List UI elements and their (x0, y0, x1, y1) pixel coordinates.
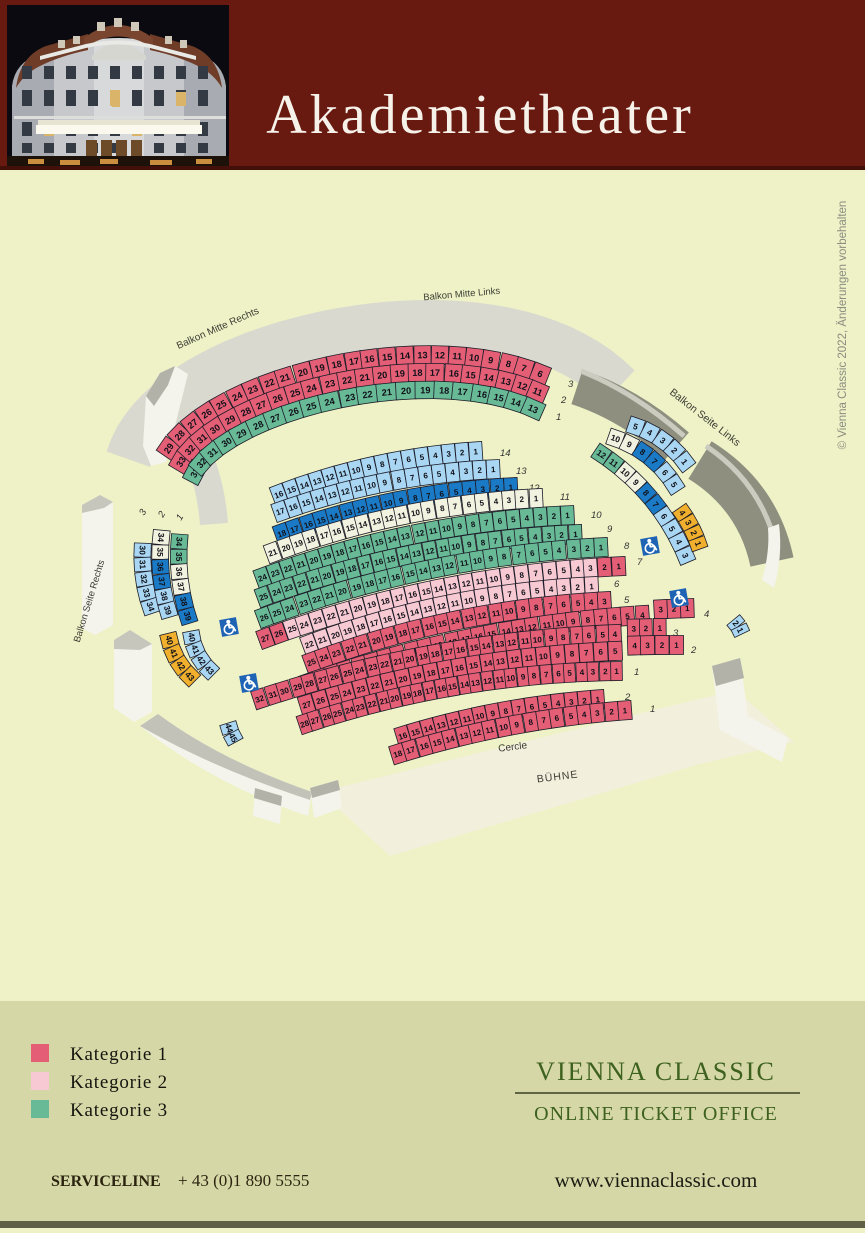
svg-text:1: 1 (650, 704, 655, 715)
svg-text:10: 10 (555, 618, 566, 628)
svg-text:14: 14 (481, 641, 492, 651)
svg-text:ONLINE TICKET OFFICE: ONLINE TICKET OFFICE (534, 1103, 778, 1125)
svg-text:12: 12 (483, 676, 494, 686)
svg-text:11: 11 (521, 636, 531, 646)
svg-text:36: 36 (155, 562, 166, 572)
svg-text:22: 22 (341, 374, 353, 386)
svg-text:SERVICELINE: SERVICELINE (51, 1173, 161, 1190)
svg-text:12: 12 (507, 638, 517, 648)
svg-text:17: 17 (457, 386, 468, 397)
svg-text:2: 2 (660, 641, 665, 650)
svg-text:2: 2 (560, 395, 567, 406)
svg-text:10: 10 (591, 510, 602, 521)
svg-text:13: 13 (516, 466, 527, 477)
svg-text:17: 17 (430, 368, 440, 378)
svg-text:11: 11 (560, 492, 570, 503)
svg-text:6: 6 (614, 579, 620, 590)
svg-text:3: 3 (645, 641, 650, 650)
svg-text:10: 10 (538, 652, 548, 662)
svg-text:31: 31 (137, 560, 147, 570)
svg-text:3: 3 (631, 624, 636, 633)
svg-text:35: 35 (155, 547, 165, 557)
svg-text:21: 21 (359, 372, 371, 383)
svg-text:16: 16 (476, 389, 488, 401)
svg-text:1: 1 (556, 412, 561, 423)
svg-text:16: 16 (364, 353, 375, 364)
svg-text:34: 34 (174, 537, 185, 547)
svg-text:13: 13 (495, 657, 506, 667)
svg-text:11: 11 (452, 351, 462, 362)
svg-text:+ 43 (0)1 890 5555: + 43 (0)1 890 5555 (178, 1171, 309, 1190)
svg-text:11: 11 (524, 653, 534, 663)
svg-text:10: 10 (468, 352, 479, 363)
svg-text:Kategorie 2: Kategorie 2 (70, 1072, 168, 1093)
svg-text:19: 19 (394, 368, 405, 379)
svg-text:20: 20 (401, 386, 412, 397)
svg-text:14: 14 (400, 351, 412, 362)
svg-text:12: 12 (510, 655, 521, 665)
svg-text:VIENNA CLASSIC: VIENNA CLASSIC (536, 1057, 776, 1086)
svg-text:4: 4 (632, 641, 637, 650)
svg-text:30: 30 (137, 545, 147, 555)
svg-text:23: 23 (344, 392, 356, 404)
svg-text:15: 15 (465, 370, 476, 381)
svg-text:13: 13 (495, 639, 506, 649)
svg-text:1: 1 (614, 667, 619, 676)
svg-text:3: 3 (568, 379, 574, 390)
svg-text:10: 10 (506, 673, 516, 683)
svg-text:Kategorie 1: Kategorie 1 (70, 1044, 168, 1065)
svg-text:www.viennaclassic.com: www.viennaclassic.com (555, 1168, 758, 1192)
svg-text:32: 32 (138, 574, 149, 585)
svg-text:13: 13 (417, 350, 427, 360)
svg-text:15: 15 (382, 352, 393, 363)
svg-text:19: 19 (420, 385, 430, 395)
svg-text:17: 17 (348, 356, 360, 368)
svg-text:4: 4 (704, 609, 709, 620)
svg-text:8: 8 (624, 541, 630, 552)
svg-text:11: 11 (495, 675, 505, 685)
svg-text:5: 5 (624, 595, 630, 606)
svg-text:9: 9 (607, 524, 613, 535)
svg-text:14: 14 (500, 448, 511, 459)
svg-text:© Vienna Classic 2022, Änderun: © Vienna Classic 2022, Änderungen vorbeh… (837, 201, 849, 450)
svg-text:Kategorie 3: Kategorie 3 (70, 1100, 168, 1121)
svg-text:Akademietheater: Akademietheater (266, 84, 693, 146)
svg-text:1: 1 (658, 624, 663, 633)
svg-text:7: 7 (637, 557, 643, 568)
svg-text:1: 1 (634, 667, 639, 678)
svg-text:1: 1 (674, 641, 679, 650)
svg-text:18: 18 (439, 385, 450, 395)
svg-text:18: 18 (331, 359, 343, 371)
svg-text:37: 37 (175, 581, 186, 592)
svg-text:22: 22 (362, 389, 374, 400)
svg-text:35: 35 (174, 552, 184, 562)
svg-text:34: 34 (156, 532, 167, 543)
svg-text:16: 16 (448, 368, 459, 379)
svg-text:2: 2 (603, 667, 608, 676)
svg-text:21: 21 (381, 387, 392, 398)
svg-text:37: 37 (156, 576, 167, 587)
svg-text:20: 20 (377, 370, 388, 381)
svg-text:2: 2 (644, 624, 649, 633)
svg-text:36: 36 (174, 567, 185, 577)
svg-text:10: 10 (532, 635, 542, 645)
svg-text:12: 12 (435, 350, 446, 360)
svg-text:2: 2 (690, 645, 697, 656)
svg-text:18: 18 (412, 368, 422, 378)
